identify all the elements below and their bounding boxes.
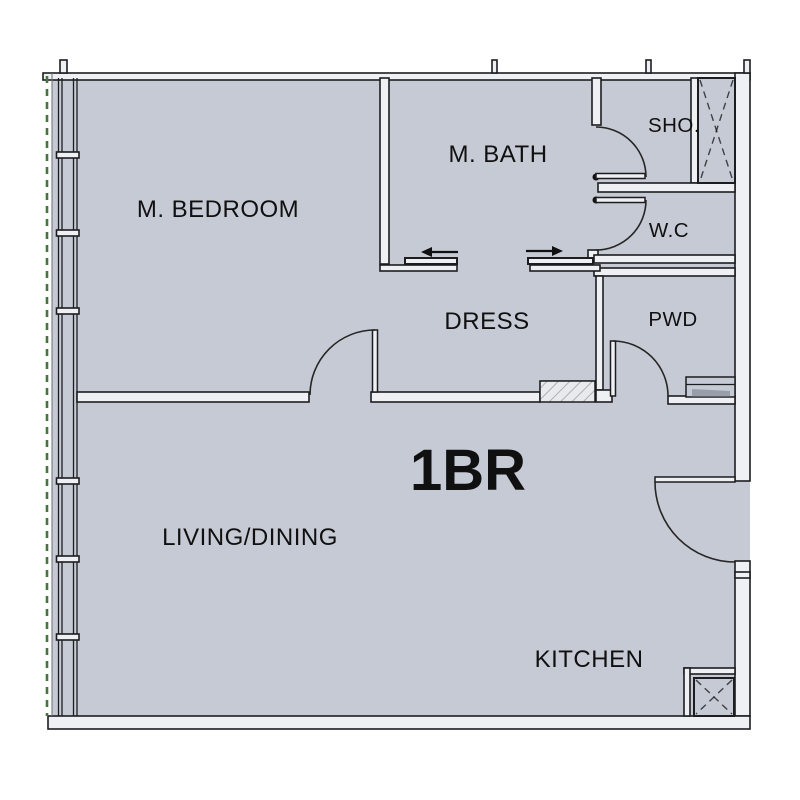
- pwd-north-wall: [594, 268, 735, 276]
- window-mullion-tick: [57, 556, 80, 562]
- room-label-wc: W.C: [649, 219, 689, 242]
- bath-sliding-door-panel: [405, 258, 457, 264]
- right-wall-joint-tick: [735, 572, 750, 578]
- unit-type-label: 1BR: [410, 438, 526, 503]
- bedroom-living-wall-left: [77, 392, 309, 402]
- room-label-living-dining: LIVING/DINING: [162, 524, 338, 551]
- room-label-kitchen: KITCHEN: [535, 646, 644, 673]
- top-stub-corner: [744, 60, 750, 73]
- top-stub-left: [60, 60, 67, 73]
- bottom-wall: [48, 716, 750, 729]
- shower-wc-divider-wall: [598, 183, 735, 192]
- pwd-west-wall-foot: [596, 390, 612, 402]
- floor-plan-page: M. BEDROOM M. BATH SHO. W.C DRESS PWD 1B…: [0, 0, 800, 800]
- top-stub-right: [646, 60, 651, 73]
- right-wall-lower: [735, 561, 750, 716]
- window-mullion-tick: [57, 230, 80, 236]
- wc-door-leaf: [596, 198, 645, 203]
- entry-door-leaf: [655, 477, 735, 482]
- wc-slider-track-right: [530, 265, 600, 271]
- window-mullion-tick: [57, 478, 80, 484]
- room-label-shower: SHO.: [648, 114, 700, 137]
- room-label-dress: DRESS: [444, 308, 529, 335]
- window-mullion-tick: [57, 634, 80, 640]
- top-wall: [43, 73, 750, 80]
- shower-door-wall-stub: [592, 78, 601, 125]
- pwd-west-wall: [596, 276, 603, 390]
- window-mullion-tick: [57, 152, 80, 158]
- top-stub-mid: [492, 60, 497, 73]
- room-label-m-bath: M. BATH: [448, 141, 547, 168]
- room-label-powder: PWD: [648, 308, 697, 331]
- floor-plan-drawing: M. BEDROOM M. BATH SHO. W.C DRESS PWD 1B…: [0, 0, 800, 800]
- room-label-m-bedroom: M. BEDROOM: [137, 196, 299, 223]
- pwd-door-leaf: [611, 341, 616, 396]
- bath-slider-track-left: [380, 265, 457, 271]
- appliance-unit: [540, 381, 595, 402]
- kitchen-niche-wall-left: [684, 668, 690, 716]
- wc-south-wall: [594, 255, 735, 263]
- bedroom-door-leaf: [373, 330, 378, 392]
- kitchen-niche-wall-top: [684, 668, 735, 674]
- window-mullion-tick: [57, 308, 80, 314]
- bedroom-bath-divider-wall: [380, 78, 389, 264]
- shower-door-leaf: [596, 174, 645, 179]
- wc-sliding-door-panel: [528, 258, 593, 264]
- right-wall-upper: [735, 73, 750, 481]
- dress-south-wall: [371, 392, 540, 402]
